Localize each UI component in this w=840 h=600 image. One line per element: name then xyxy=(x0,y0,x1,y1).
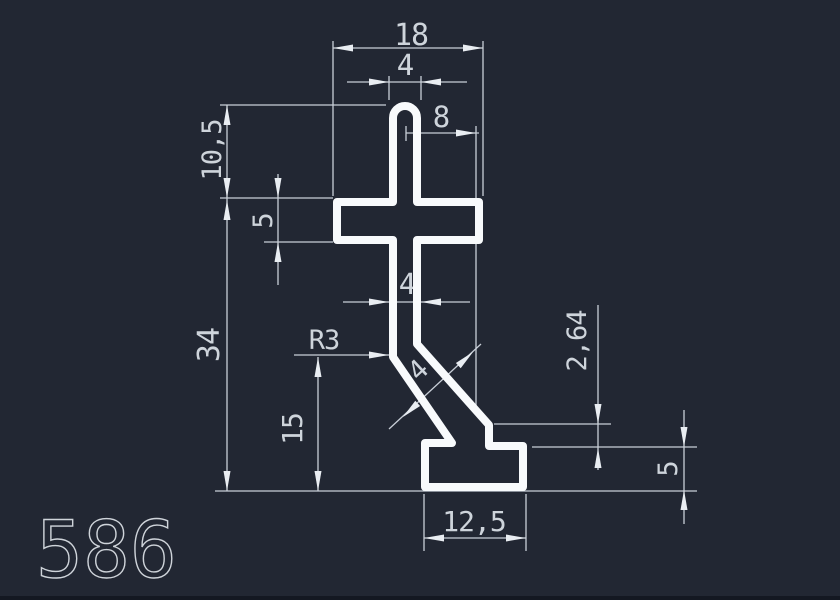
dim-text-cap-height: 10,5 xyxy=(197,119,228,180)
dim-arrow xyxy=(424,535,444,542)
dim-arrow xyxy=(275,242,282,262)
dim-leg-height[interactable]: 15 xyxy=(276,357,322,491)
dim-text-leg-height: 15 xyxy=(276,413,309,445)
dim-arrow xyxy=(681,427,688,447)
drawing-viewport: 18 4 8 10,5 34 5 xyxy=(0,0,840,600)
dim-text-profile-height: 34 xyxy=(192,328,227,362)
dim-text-base-thickness: 5 xyxy=(653,461,684,476)
dim-fillet-radius[interactable]: R3 xyxy=(294,325,389,359)
dim-text-stem-width-top: 4 xyxy=(397,48,414,82)
dim-arrow xyxy=(681,490,688,510)
dim-base-width[interactable]: 12,5 xyxy=(424,494,526,551)
dim-arrow xyxy=(369,79,389,86)
dim-text-base-width: 12,5 xyxy=(442,505,505,538)
dim-stem-width-mid[interactable]: 4 xyxy=(343,267,470,306)
dim-arrow xyxy=(224,200,231,220)
dim-text-step-height: 2,64 xyxy=(562,310,593,371)
dim-arm-thickness[interactable]: 5 xyxy=(248,174,333,285)
dim-profile-height[interactable]: 34 xyxy=(192,200,231,491)
dim-arrow xyxy=(369,299,389,306)
dim-arrow xyxy=(421,299,441,306)
dim-arrow xyxy=(333,45,353,52)
cad-drawing-canvas: 18 4 8 10,5 34 5 xyxy=(0,0,840,600)
leader-arrow xyxy=(369,352,389,359)
dim-arrow xyxy=(315,471,322,491)
dim-arrow xyxy=(421,79,441,86)
part-number-label: 586 xyxy=(36,506,177,596)
dim-text-fillet-radius: R3 xyxy=(309,325,340,356)
dim-arrow xyxy=(595,448,602,468)
dim-arrow xyxy=(275,178,282,198)
dim-text-offset-width: 8 xyxy=(433,100,449,134)
dim-arrow xyxy=(456,130,476,137)
dim-arrow xyxy=(463,45,483,52)
profile-outline[interactable] xyxy=(337,106,523,487)
dim-arrow xyxy=(506,535,526,542)
bottom-edge xyxy=(0,596,840,600)
dim-arrow xyxy=(456,352,473,368)
dim-text-arm-thickness: 5 xyxy=(248,213,279,228)
dim-arrow xyxy=(403,401,420,417)
dim-stem-width-top[interactable]: 4 xyxy=(347,48,467,100)
dim-arrow xyxy=(315,357,322,377)
dim-arrow xyxy=(224,471,231,491)
dim-base-thickness[interactable]: 5 xyxy=(653,410,688,524)
dim-arrow xyxy=(595,404,602,424)
